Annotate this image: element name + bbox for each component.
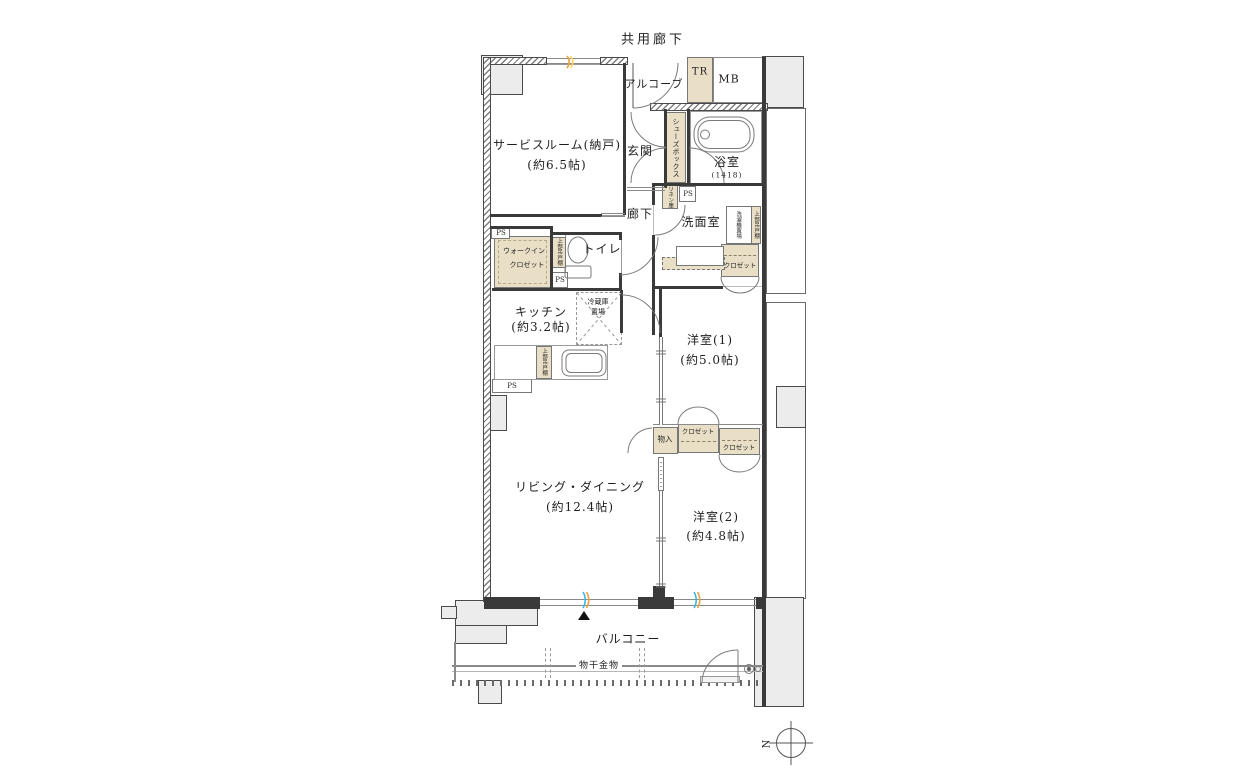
outer-wall-band-upper <box>766 108 806 294</box>
ps-label-wic: PS <box>496 229 506 237</box>
window-top-line2 <box>547 63 600 64</box>
wall-toilet-right-a <box>619 232 622 240</box>
floorplan-canvas: 共用廊下 アルコーブ TR MB サービスルーム(納戸) (約6.5帖) 玄関 … <box>0 0 1260 774</box>
ps-label-toilet: PS <box>555 276 565 284</box>
common-corridor-label: 共用廊下 <box>621 34 685 49</box>
wall-genkan-right <box>664 109 667 188</box>
drying-fixture-label: 物干金物 <box>576 661 622 671</box>
walk-in-closet-label1: ウォークイン <box>503 247 545 255</box>
door-arc-shoebox-top <box>631 112 666 147</box>
drying-mark-1b <box>550 648 551 678</box>
closet-mid-label: クロゼット <box>682 428 715 435</box>
living-label: リビング・ダイニング <box>515 481 645 495</box>
balcony-label: バルコニー <box>596 633 661 647</box>
kitchen-counter <box>494 345 608 380</box>
door-arc-closet-bedroom2-l <box>719 455 739 472</box>
wall-wic-bottom <box>492 288 622 291</box>
compass-icon <box>777 729 806 758</box>
outer-wall-band-lower <box>766 302 806 599</box>
door-arc-closet-mid-r <box>698 407 719 424</box>
fridge-label1: 冷蔵庫 <box>588 298 609 306</box>
bathroom-size: (1418) <box>712 172 743 181</box>
wall-washroom-left-b <box>652 235 655 335</box>
service-room-size: (約6.5帖) <box>527 159 586 173</box>
wall-bottom-a <box>484 597 540 609</box>
closet-bedroom2-dash <box>722 440 757 441</box>
bedroom1-size: (約5.0帖) <box>680 354 739 368</box>
vanity-basin <box>676 246 724 266</box>
floorplan-symbols <box>0 0 1260 774</box>
wall-top-a <box>483 57 547 65</box>
bedroom1-label: 洋室(1) <box>687 334 733 348</box>
laundry-label: 洗濯機置場 <box>735 211 741 239</box>
service-room-label: サービスルーム(納戸) <box>493 139 621 153</box>
trunk-room-label: TR <box>692 66 708 78</box>
wall-left <box>483 57 491 602</box>
living-size: (約12.4帖) <box>546 501 614 515</box>
closet-mid-dash <box>681 441 716 442</box>
ps-label-kitchen: PS <box>507 382 517 390</box>
door-arc-closet-bedroom2-r <box>739 455 760 472</box>
wall-corridor-kitchen <box>620 290 623 333</box>
genkan-step-line1 <box>627 187 665 188</box>
drying-mark-1a <box>545 648 546 678</box>
sliding-door-bedroom2 <box>658 457 664 491</box>
kitchen-label: キッチン <box>515 306 567 320</box>
wall-unit-right <box>762 57 766 707</box>
wall-washroom-bottom <box>655 286 723 289</box>
wall-bedroom1-left-upper <box>659 288 662 337</box>
linen-label: リネン庫 <box>667 186 673 208</box>
fridge-label2: 置場 <box>591 308 605 316</box>
balcony-slab-arm <box>441 606 457 619</box>
partition-living-bedroom2 <box>659 491 663 597</box>
wall-washroom-left-a <box>652 186 655 205</box>
window-bedroom2-line1 <box>674 599 756 600</box>
drying-mark-2b <box>644 648 645 678</box>
closet-bedroom1-label: クロゼット <box>724 262 757 269</box>
wall-bottom-stub <box>653 586 665 598</box>
wall-wic-right <box>550 226 553 290</box>
genkan-step-line2 <box>627 190 665 191</box>
door-arc-storage <box>628 428 652 453</box>
upper-cabinet-laundry-label: 上部吊戸棚 <box>753 211 759 239</box>
wall-bottom-c <box>756 597 764 609</box>
bedroom2-label: 洋室(2) <box>693 511 739 525</box>
shoe-box-label: シューズボックス <box>672 118 680 178</box>
wall-bump-right <box>776 386 806 428</box>
closet-bedroom1-dash <box>724 255 756 256</box>
trunk-room-box <box>687 57 713 103</box>
pillar-top-right <box>762 56 804 108</box>
hallway-label: 廊下 <box>627 208 653 222</box>
balcony-left-edge <box>454 642 456 682</box>
window-top-line1 <box>547 58 600 59</box>
window-bedroom2-line2 <box>674 605 756 606</box>
entrance-label: 玄関 <box>627 145 653 159</box>
storage-label: 物入 <box>658 436 673 445</box>
wall-alcove-bath <box>650 103 768 111</box>
closet-row-top-line <box>653 424 763 425</box>
balcony-triangle-marker <box>578 611 590 620</box>
service-slide-door2 <box>601 216 625 217</box>
window-living-line2 <box>540 605 638 606</box>
ps-label-hall: PS <box>683 190 693 198</box>
service-slide-door1 <box>601 213 625 214</box>
closet-bedroom2-label: クロゼット <box>723 444 756 451</box>
washroom-label: 洗面室 <box>681 216 720 230</box>
balcony-slab-left-b <box>455 625 507 644</box>
drying-mark-2a <box>639 648 640 678</box>
wall-service-bottom <box>490 214 602 217</box>
wall-bath-left <box>687 109 690 185</box>
toilet-outline <box>565 232 622 289</box>
compass-north-label: N <box>761 740 773 749</box>
door-arc-closet-mid-l <box>678 407 698 424</box>
kitchen-size: (約3.2帖) <box>511 321 570 335</box>
wall-toilet-top <box>552 232 622 235</box>
bedroom2-size: (約4.8帖) <box>686 530 745 544</box>
balcony-door-threshold <box>700 676 740 683</box>
meter-box-label: MB <box>718 74 739 87</box>
upper-cabinet-toilet-label: 上部吊戸棚 <box>556 238 562 266</box>
bathroom-label: 浴室 <box>714 156 740 170</box>
upper-cabinet-kitchen-label: 上部吊戸棚 <box>541 348 547 376</box>
alcove-label: アルコーブ <box>624 79 683 92</box>
partition-living-bedroom1 <box>659 337 663 425</box>
window-living-line1 <box>540 599 638 600</box>
wall-bottom-b <box>638 597 674 609</box>
toilet-label: トイレ <box>582 243 621 257</box>
walk-in-closet-label2: クロゼット <box>510 261 545 269</box>
